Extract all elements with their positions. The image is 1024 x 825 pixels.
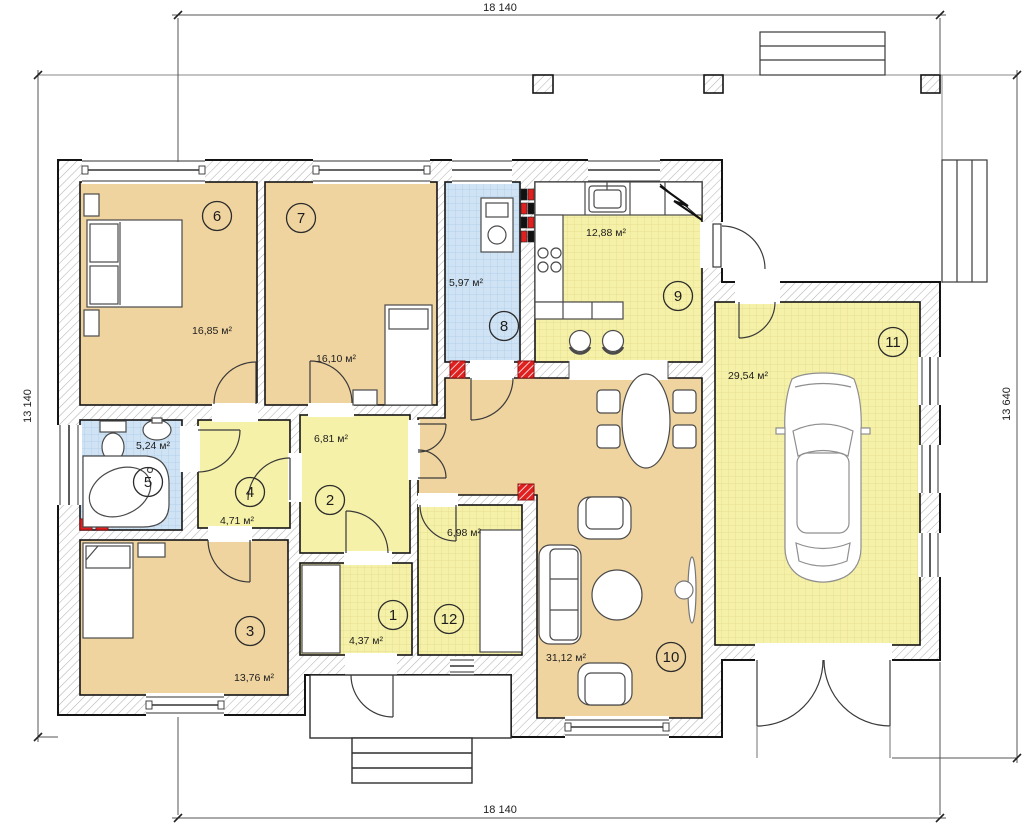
room-11-number: 11	[885, 334, 901, 351]
column-icon	[533, 75, 553, 93]
bathtub-icon	[81, 456, 169, 527]
room-12-area: 6,98 м²	[447, 527, 482, 539]
chair-icon	[673, 425, 696, 448]
room-6-number: 6	[213, 208, 221, 225]
chair-icon	[597, 425, 620, 448]
bed-icon	[87, 220, 182, 307]
washing-machine-icon	[481, 198, 513, 252]
terrace-columns	[533, 75, 940, 93]
bed-icon	[385, 305, 432, 405]
window-room9	[588, 158, 660, 184]
room-8-number: 8	[500, 318, 508, 335]
entry-porch	[310, 675, 511, 783]
window-room6	[82, 158, 205, 184]
window-room10	[565, 716, 669, 740]
room-8-area: 5,97 м²	[449, 277, 484, 289]
dimension-left: 13 140	[22, 389, 34, 423]
wardrobe-icon	[480, 530, 522, 652]
room-11-area: 29,54 м²	[728, 370, 768, 382]
room-1-number: 1	[389, 607, 397, 624]
room-3-area: 13,76 м²	[234, 672, 274, 684]
room-7-number: 7	[297, 210, 305, 227]
kitchen-sink-icon	[589, 182, 626, 212]
dimension-bottom: 18 140	[483, 804, 517, 816]
terrace-steps-top	[760, 32, 885, 75]
room-9-number: 9	[674, 288, 682, 305]
vent-icon	[518, 361, 534, 378]
room-12-number: 12	[441, 611, 458, 628]
dimension-top: 18 140	[483, 2, 517, 14]
window-garage-2	[918, 445, 942, 493]
floor-plan-page: 1 2 3 4 5 6 7 8 9 10 11 12 4,37 м² 6,81 …	[0, 0, 1024, 825]
vent-icon	[450, 361, 465, 378]
room-9-area: 12,88 м²	[586, 227, 626, 239]
window-room7	[313, 158, 430, 184]
porch-steps	[352, 738, 472, 783]
room-4-floor	[198, 420, 290, 528]
room-6-area: 16,85 м²	[192, 325, 232, 337]
room-5-area: 5,24 м²	[136, 440, 171, 452]
armchair-icon	[578, 663, 632, 705]
sofa-icon	[539, 545, 581, 644]
room-7-area: 16,10 м²	[316, 353, 356, 365]
room-3-number: 3	[246, 623, 254, 640]
nightstand-icon	[353, 390, 377, 405]
chair-icon	[597, 390, 620, 413]
bed-icon	[83, 543, 133, 638]
column-icon	[704, 75, 723, 93]
window-room3	[146, 693, 224, 718]
room-10-number: 10	[663, 649, 680, 666]
column-icon	[921, 75, 940, 93]
room-1-area: 4,37 м²	[349, 635, 384, 647]
room-4-area: 4,71 м²	[220, 515, 255, 527]
dimension-right: 13 640	[1001, 387, 1013, 421]
room-10-area: 31,12 м²	[546, 652, 586, 664]
closet-icon	[302, 565, 340, 653]
room-2-number: 2	[326, 492, 334, 509]
floor-plan-canvas: 1 2 3 4 5 6 7 8 9 10 11 12 4,37 м² 6,81 …	[0, 0, 1024, 825]
toilet-icon	[100, 421, 126, 461]
nightstand-icon	[84, 310, 99, 336]
room-5-number: 5	[144, 474, 152, 491]
coffee-table-icon	[592, 570, 642, 620]
window-room5	[56, 425, 82, 505]
window-garage-1	[918, 357, 942, 405]
terrace-steps-right	[942, 160, 987, 282]
garage-gate	[757, 660, 890, 758]
armchair-icon	[578, 497, 631, 539]
room-4-number: 4	[246, 484, 254, 501]
window-room8	[452, 158, 512, 184]
room-2-area: 6,81 м²	[314, 433, 349, 445]
vent-icon	[518, 484, 534, 500]
car-icon	[776, 373, 870, 582]
chair-icon	[673, 390, 696, 413]
window-garage-3	[918, 533, 942, 577]
door-kitchen-terrace	[713, 224, 765, 269]
nightstand-icon	[84, 194, 99, 216]
nightstand-icon	[138, 543, 165, 557]
